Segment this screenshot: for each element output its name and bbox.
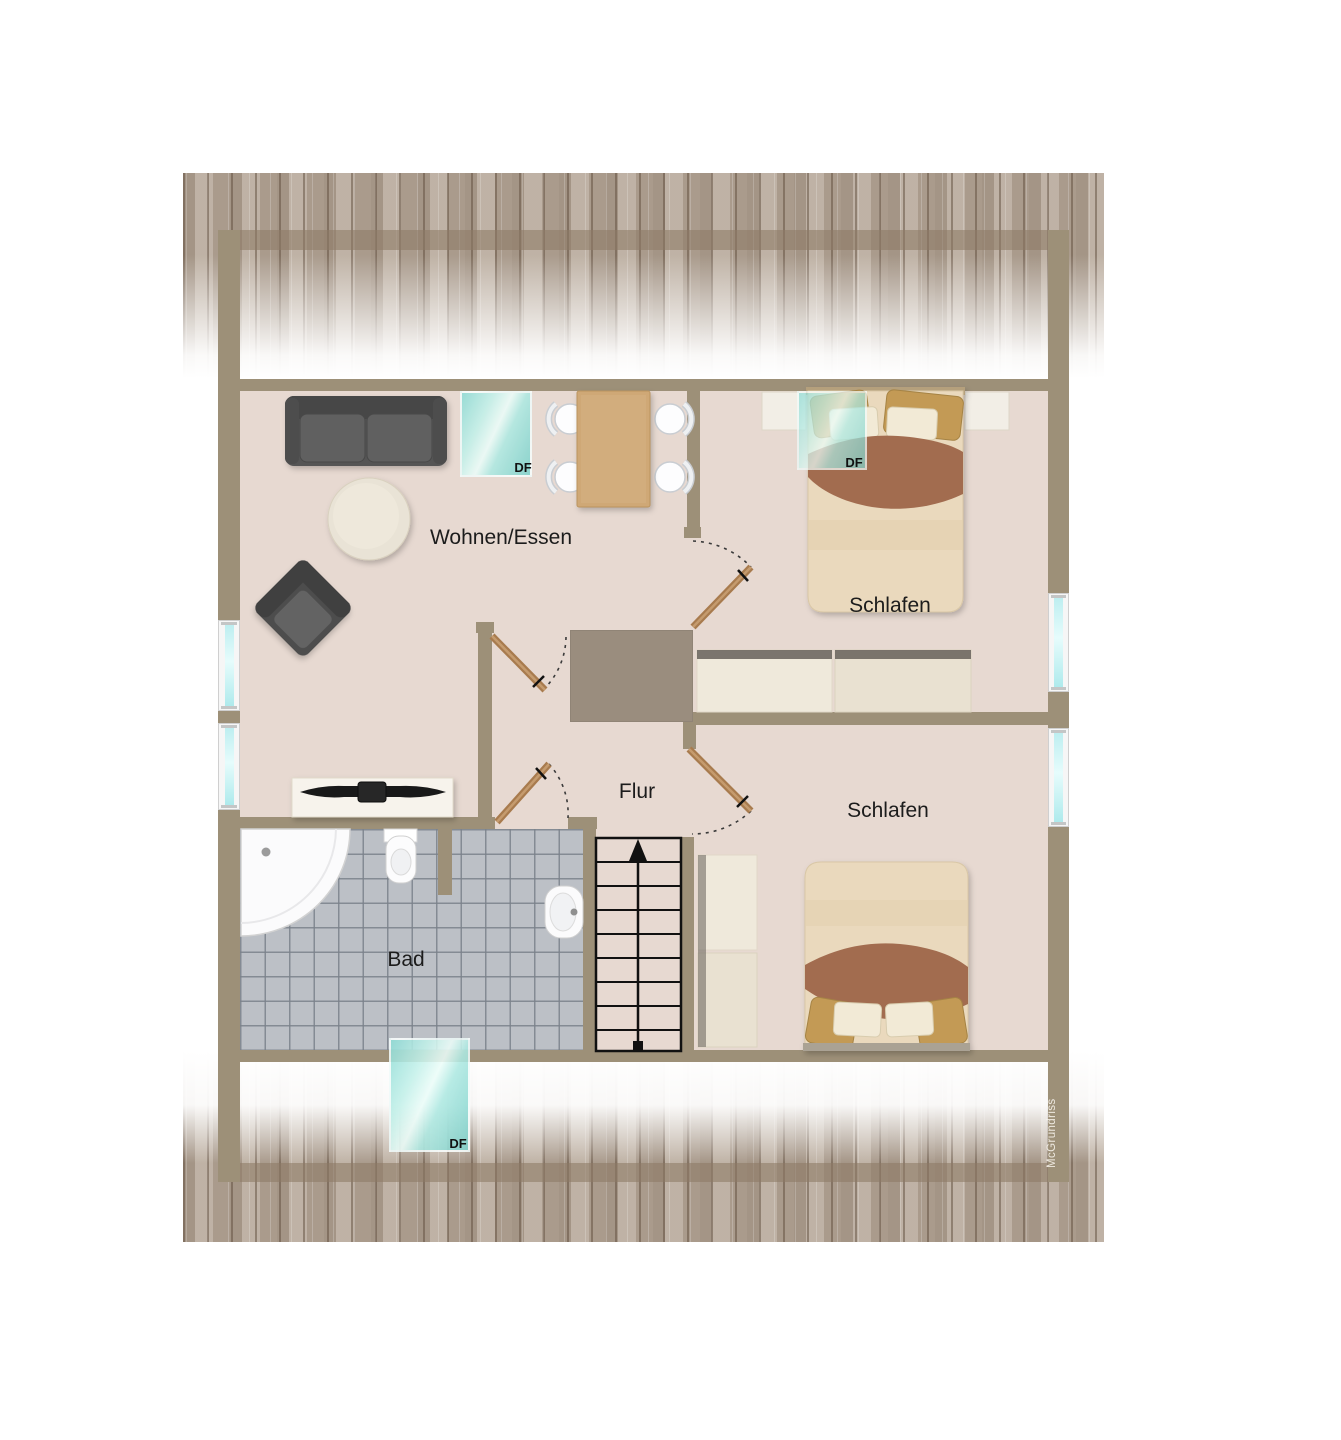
furniture-layer xyxy=(0,0,1341,1440)
room-label-bad: Bad xyxy=(306,948,506,972)
room-label-schlafen-2: Schlafen xyxy=(788,799,988,823)
wardrobe xyxy=(698,855,757,1047)
wardrobe xyxy=(697,650,971,712)
floor-plan-page: Wohnen/Essen Schlafen Schlafen Flur Bad … xyxy=(0,0,1341,1440)
nightstand xyxy=(965,392,1009,430)
door-wohnen-schlafen1 xyxy=(693,541,751,627)
double-bed-schlafen2 xyxy=(803,862,970,1051)
room-label-flur: Flur xyxy=(537,780,737,804)
skylight-label-df-bad: DF xyxy=(440,1136,476,1151)
sofa xyxy=(285,396,447,466)
corner-shower xyxy=(241,829,350,936)
armchair xyxy=(252,557,354,659)
skylight-label-df-schlafen: DF xyxy=(836,455,872,470)
skylight-bad xyxy=(389,1038,470,1152)
chair-icon xyxy=(655,404,691,434)
chair-icon xyxy=(655,462,691,492)
stairs-up-arrow-icon xyxy=(629,839,647,1050)
room-label-schlafen-1: Schlafen xyxy=(790,594,990,618)
staircase xyxy=(596,838,681,1051)
room-label-wohnen-essen: Wohnen/Essen xyxy=(381,526,621,550)
toilet-icon xyxy=(384,829,417,883)
dining-table xyxy=(577,391,650,507)
watermark: McGrundriss xyxy=(1046,1098,1058,1168)
skylight-label-df-wohnen: DF xyxy=(505,460,541,475)
sink-icon xyxy=(545,886,583,938)
door-wohnen-flur xyxy=(492,636,566,690)
